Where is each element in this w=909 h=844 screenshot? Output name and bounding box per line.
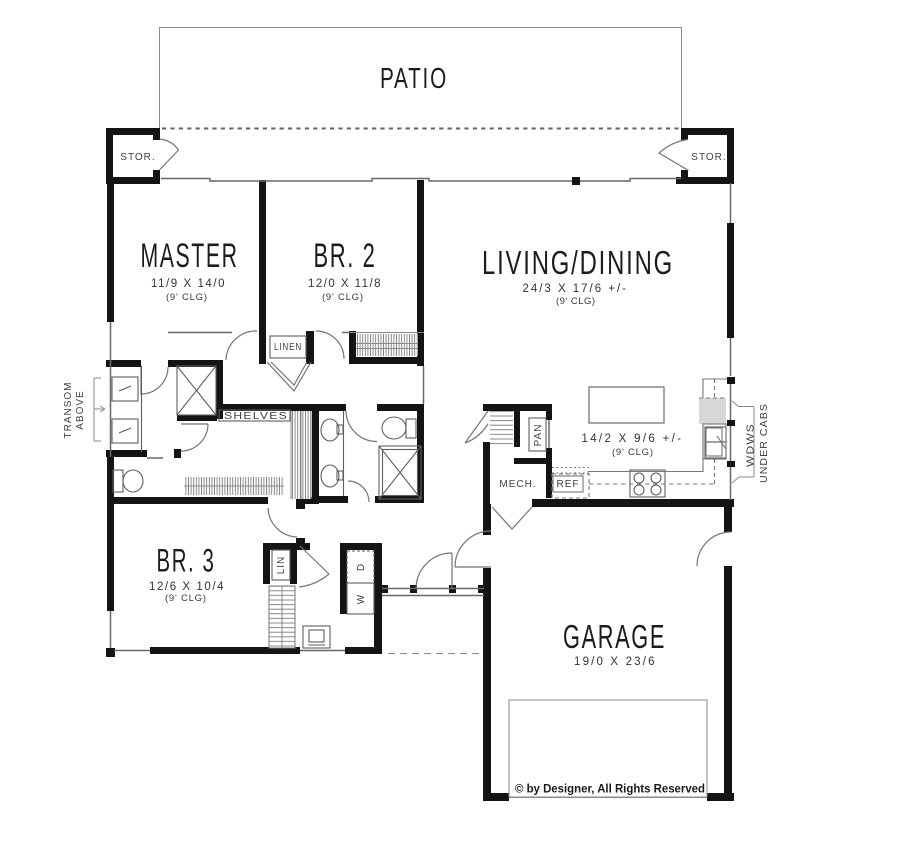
- svg-text:REF: REF: [557, 479, 580, 490]
- svg-text:(9' CLG): (9' CLG): [556, 296, 596, 307]
- svg-text:SHELVES: SHELVES: [224, 411, 288, 422]
- svg-text:12/0 X 11/8: 12/0 X 11/8: [308, 278, 382, 290]
- svg-text:STOR.: STOR.: [120, 152, 155, 163]
- svg-text:(9' CLG): (9' CLG): [322, 292, 364, 303]
- svg-text:STOR.: STOR.: [691, 152, 726, 163]
- svg-text:PAN: PAN: [533, 424, 544, 447]
- svg-text:GARAGE: GARAGE: [563, 618, 666, 655]
- svg-text:© by Designer, All Rights Rese: © by Designer, All Rights Reserved: [515, 782, 705, 796]
- svg-text:MECH.: MECH.: [499, 479, 536, 490]
- svg-text:(9' CLG): (9' CLG): [165, 593, 207, 604]
- svg-text:TRANSOM: TRANSOM: [63, 382, 74, 439]
- svg-text:LINEN: LINEN: [274, 342, 302, 353]
- svg-text:(9' CLG): (9' CLG): [612, 447, 654, 458]
- svg-text:BR. 2: BR. 2: [314, 237, 377, 275]
- svg-text:WDWS: WDWS: [746, 423, 757, 467]
- svg-text:19/0 X 23/6: 19/0 X 23/6: [574, 656, 656, 668]
- svg-text:12/6 X 10/4: 12/6 X 10/4: [149, 581, 225, 593]
- svg-text:W: W: [356, 594, 367, 604]
- svg-text:(9' CLG): (9' CLG): [166, 292, 208, 303]
- svg-text:LIN: LIN: [276, 556, 287, 575]
- svg-text:LIVING/DINING: LIVING/DINING: [482, 244, 674, 281]
- svg-text:BR. 3: BR. 3: [157, 543, 216, 579]
- svg-text:11/9 X 14/0: 11/9 X 14/0: [151, 278, 226, 290]
- svg-text:14/2 X 9/6 +/-: 14/2 X 9/6 +/-: [582, 433, 683, 445]
- svg-text:UNDER CABS: UNDER CABS: [759, 403, 770, 483]
- svg-text:D: D: [356, 563, 367, 571]
- svg-text:PATIO: PATIO: [380, 63, 448, 95]
- svg-text:24/3 X 17/6 +/-: 24/3 X 17/6 +/-: [523, 283, 628, 295]
- svg-text:MASTER: MASTER: [141, 237, 239, 275]
- svg-text:ABOVE: ABOVE: [75, 390, 86, 429]
